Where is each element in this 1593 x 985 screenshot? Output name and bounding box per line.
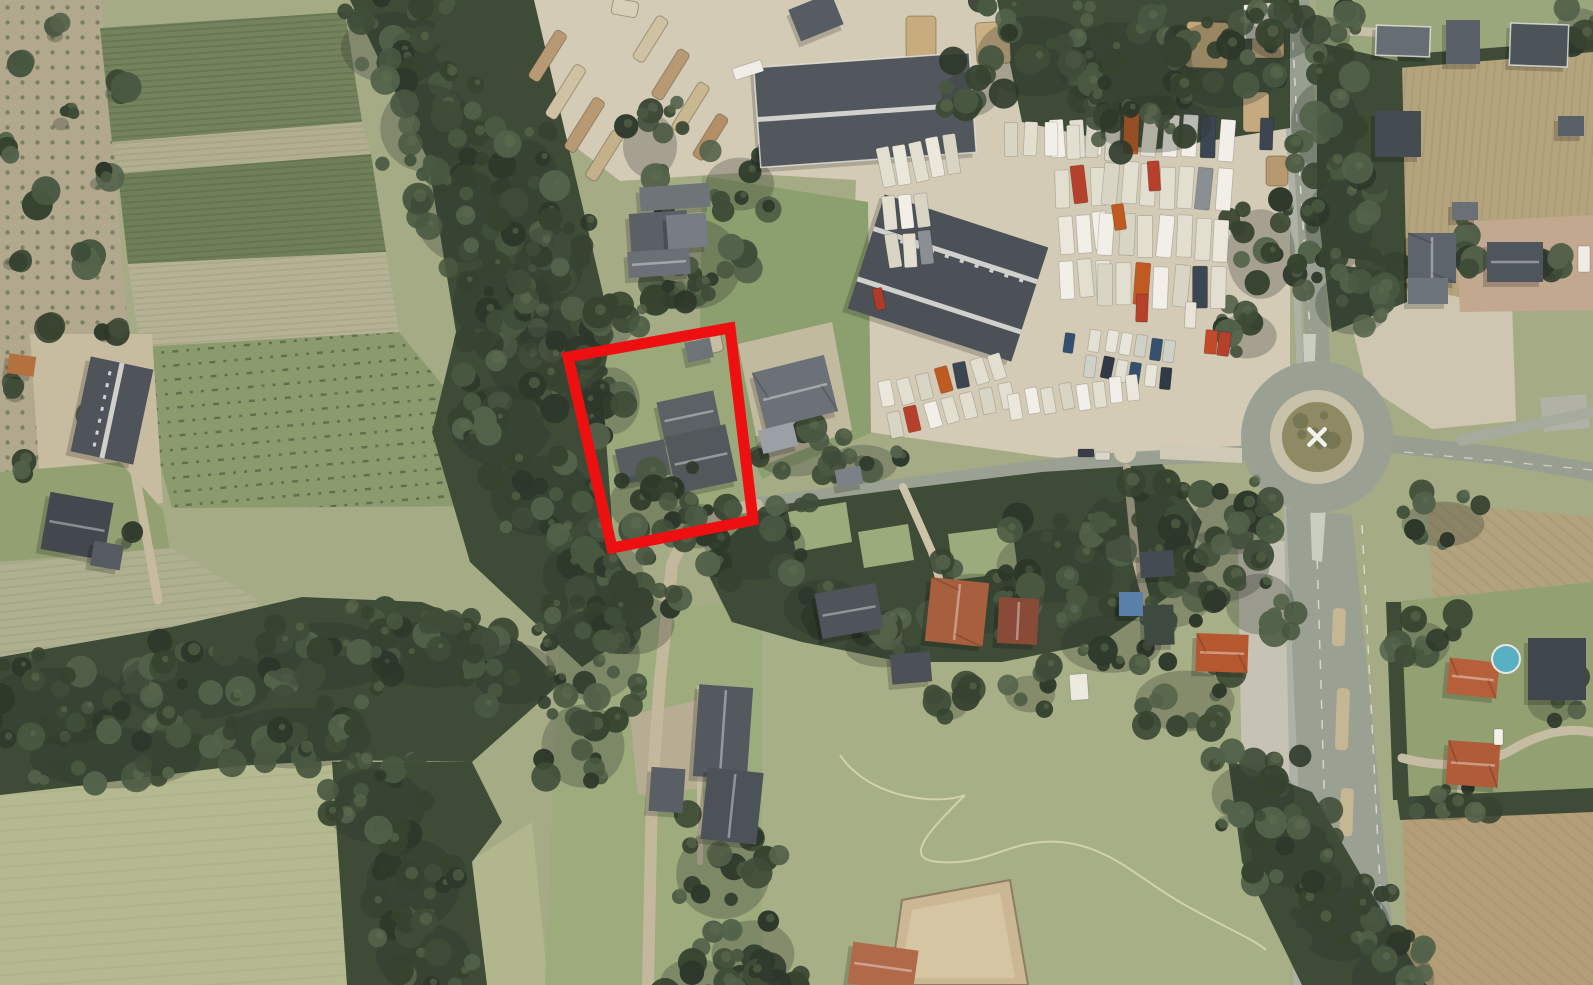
building-roof (1524, 638, 1586, 705)
aerial-photo[interactable] (0, 0, 1593, 985)
vehicle (1494, 729, 1503, 745)
yard-entrance (1122, 418, 1125, 452)
vehicle (1069, 673, 1089, 700)
building-roof (1483, 242, 1543, 287)
building-roof (1371, 111, 1421, 162)
building-roof (623, 248, 691, 284)
vehicle (1095, 452, 1110, 460)
vehicle (1078, 449, 1094, 457)
building-roof (1442, 657, 1500, 703)
building-roof (1404, 278, 1448, 309)
building-roof (1135, 550, 1175, 584)
building-roof (993, 597, 1040, 650)
building-roof (886, 651, 933, 690)
building-roof (1448, 202, 1478, 225)
building-roof (1115, 592, 1143, 621)
building-roof (920, 577, 989, 652)
building-roof (85, 540, 124, 575)
aerial-photo-viewport[interactable] (0, 0, 1593, 985)
building-roof (696, 767, 764, 850)
vehicle (1204, 330, 1218, 355)
vehicle (1136, 294, 1149, 322)
vehicle (1184, 302, 1196, 329)
building-roof (1554, 116, 1584, 141)
building-roof (644, 767, 685, 819)
pools (1491, 644, 1521, 674)
building-roof (1371, 25, 1430, 62)
building-roof (1191, 633, 1248, 678)
building-roof (1442, 20, 1480, 69)
building-roof (1505, 23, 1569, 72)
vehicle (1259, 118, 1273, 150)
building-roof (1139, 604, 1175, 650)
building-roof (1441, 740, 1500, 793)
vehicle (1147, 161, 1161, 192)
vehicle (1578, 246, 1590, 272)
